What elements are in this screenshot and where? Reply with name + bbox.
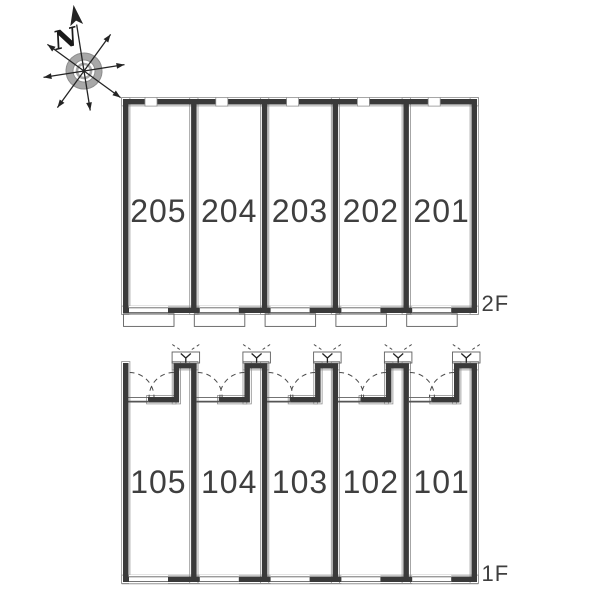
door-swing-arc — [198, 373, 223, 398]
wall-segment — [148, 397, 175, 403]
wall-segment — [333, 363, 339, 582]
wall-segment — [290, 397, 317, 403]
unit-label-1f-2: 103 — [272, 464, 328, 500]
wall-segment — [123, 363, 129, 582]
wall-segment — [244, 363, 267, 369]
wall-segment — [386, 363, 409, 369]
wall-segment — [431, 397, 455, 403]
wall-segment — [403, 363, 409, 582]
wall-segment — [244, 363, 250, 403]
window — [216, 97, 228, 106]
wall-outlines — [122, 98, 479, 584]
wall-segment — [262, 99, 268, 313]
window — [341, 306, 380, 315]
door-swing-dash — [403, 345, 412, 351]
balcony — [194, 314, 245, 327]
wall-segment — [191, 363, 197, 582]
unit-label-1f-4: 101 — [413, 464, 469, 500]
wall-segment — [454, 363, 460, 403]
wall-segment — [174, 363, 197, 369]
door-swing-arc — [291, 372, 316, 397]
window — [129, 575, 168, 584]
unit-label-1f-1: 104 — [201, 464, 257, 500]
door-swing-arc — [339, 373, 364, 398]
wall-segment — [472, 99, 478, 313]
door-swing-dash — [385, 345, 394, 351]
window — [271, 575, 310, 584]
wall-segment — [315, 363, 338, 369]
unit-label-2f-2: 203 — [272, 193, 328, 229]
window — [129, 306, 168, 315]
wall-segment — [123, 99, 129, 313]
window — [200, 575, 239, 584]
door-swing-arc — [268, 373, 293, 398]
wall-segment — [191, 99, 197, 313]
wall-segment — [315, 363, 321, 403]
floor-label-1f: 1F — [482, 561, 510, 586]
door-swing-dash — [471, 345, 480, 351]
unit-label-2f-3: 202 — [343, 193, 399, 229]
window — [271, 306, 310, 315]
door-swing-dash — [332, 345, 341, 351]
window — [357, 97, 369, 106]
door-swing-arc — [149, 373, 173, 398]
wall-segment — [386, 363, 392, 403]
window — [412, 306, 451, 315]
unit-label-2f-4: 201 — [413, 193, 469, 229]
door-swing-arc — [430, 373, 455, 398]
window — [341, 575, 380, 584]
door-swing-dash — [453, 345, 462, 351]
wall-segment — [174, 363, 180, 403]
balcony — [336, 314, 387, 327]
window — [145, 97, 157, 106]
door-swing-dash — [314, 345, 323, 351]
window — [287, 97, 299, 106]
door-swing-arc — [410, 373, 435, 398]
door-swing-dash — [261, 345, 270, 351]
wall-segment — [360, 397, 387, 403]
wall-segment — [403, 99, 409, 313]
wall-segment — [454, 363, 477, 369]
wall-segment — [333, 99, 339, 313]
window — [412, 575, 451, 584]
door-swing-dash — [243, 345, 252, 351]
unit-label-1f-3: 102 — [343, 464, 399, 500]
wall-segment — [262, 363, 268, 582]
door-swing-arc — [361, 372, 386, 397]
unit-label-1f-0: 105 — [130, 464, 186, 500]
wall-segment — [219, 397, 246, 403]
wall-segment — [472, 363, 478, 582]
floorplan-drawing: 2051052041042031032021022011012F1FN — [0, 0, 600, 600]
door-swing-dash — [172, 345, 181, 351]
floorplan-page: 2051052041042031032021022011012F1FN — [0, 0, 600, 600]
window — [428, 97, 440, 106]
floor-label-2f: 2F — [482, 291, 510, 316]
window — [200, 306, 239, 315]
unit-label-2f-0: 205 — [130, 193, 186, 229]
walls — [123, 99, 477, 582]
unit-label-2f-1: 204 — [201, 193, 257, 229]
balcony — [124, 314, 175, 327]
door-swing-arc — [220, 373, 244, 398]
door-swing-dash — [190, 345, 199, 351]
wall-segment — [123, 99, 477, 105]
compass: N — [33, 0, 131, 117]
balcony — [407, 314, 458, 327]
balcony — [265, 314, 316, 327]
door-swing-arc — [130, 373, 155, 398]
